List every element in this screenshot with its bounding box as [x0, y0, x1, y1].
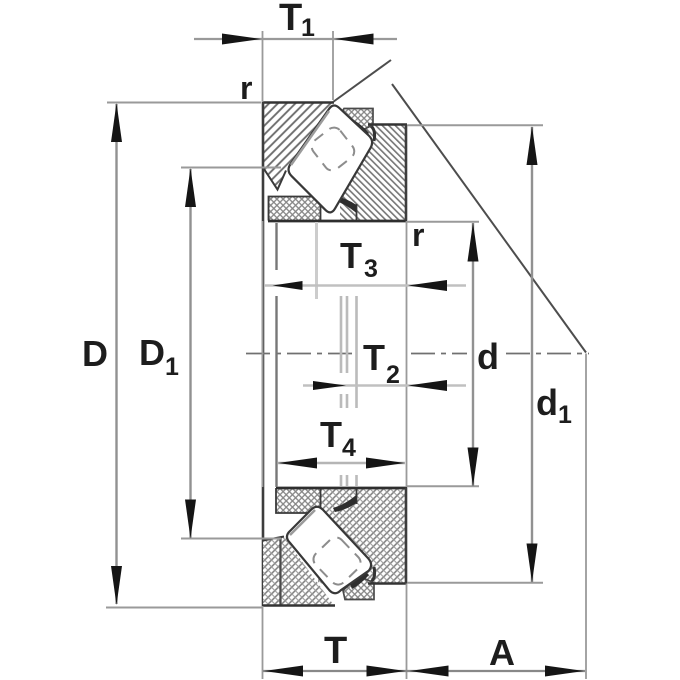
svg-text:T: T [363, 337, 385, 378]
svg-text:3: 3 [364, 255, 378, 283]
svg-text:D: D [82, 333, 108, 374]
svg-text:r: r [412, 217, 424, 253]
svg-text:T: T [279, 0, 302, 39]
svg-text:1: 1 [558, 401, 572, 429]
svg-text:d: d [536, 382, 558, 423]
svg-text:2: 2 [386, 361, 400, 389]
svg-text:4: 4 [342, 434, 356, 462]
svg-text:d: d [477, 336, 499, 377]
svg-text:T: T [340, 235, 362, 276]
svg-text:1: 1 [165, 353, 179, 381]
svg-text:T: T [324, 630, 347, 672]
svg-text:T: T [320, 414, 342, 455]
svg-text:r: r [240, 70, 252, 106]
svg-text:1: 1 [301, 14, 315, 42]
svg-text:A: A [489, 632, 515, 673]
svg-text:D: D [139, 332, 165, 373]
